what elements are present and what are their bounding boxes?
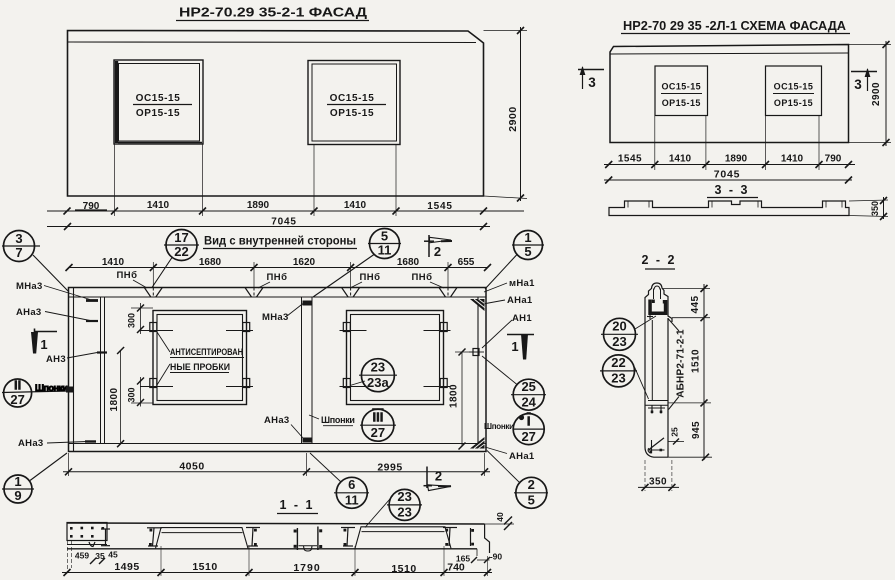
svg-text:МНа3: МНа3	[16, 281, 43, 292]
svg-text:300: 300	[127, 313, 137, 328]
svg-text:459: 459	[75, 551, 89, 561]
svg-text:1410: 1410	[344, 200, 367, 211]
svg-text:II: II	[14, 378, 21, 393]
svg-text:3: 3	[854, 77, 862, 92]
svg-text:23а: 23а	[367, 375, 389, 390]
svg-text:ОС15-15: ОС15-15	[330, 93, 375, 104]
svg-text:2: 2	[434, 244, 441, 259]
svg-text:7: 7	[15, 245, 22, 260]
svg-text:25: 25	[670, 427, 680, 437]
svg-text:1410: 1410	[147, 200, 170, 211]
svg-text:2900: 2900	[871, 82, 882, 106]
svg-text:23: 23	[397, 505, 411, 520]
svg-text:2995: 2995	[377, 461, 402, 473]
svg-text:790: 790	[825, 154, 842, 165]
svg-text:АБНР2-71-2-1: АБНР2-71-2-1	[676, 329, 687, 398]
svg-text:III: III	[372, 410, 383, 425]
svg-text:1890: 1890	[247, 200, 270, 211]
svg-text:1800: 1800	[109, 388, 120, 412]
svg-text:27: 27	[521, 429, 535, 444]
svg-text:1545: 1545	[618, 154, 642, 165]
svg-text:11: 11	[345, 493, 359, 508]
svg-text:1800: 1800	[449, 384, 460, 408]
svg-text:1495: 1495	[114, 561, 139, 573]
svg-text:23: 23	[397, 489, 411, 504]
svg-text:445: 445	[690, 296, 701, 314]
svg-text:-90: -90	[490, 552, 503, 562]
svg-text:3 - 3: 3 - 3	[714, 183, 749, 197]
svg-text:1620: 1620	[293, 257, 316, 268]
svg-text:АНа3: АНа3	[264, 415, 290, 426]
svg-text:АНТИСЕПТИРОВАН: АНТИСЕПТИРОВАН	[170, 347, 243, 358]
svg-text:1 - 1: 1 - 1	[279, 498, 314, 512]
svg-text:Шпонки: Шпонки	[484, 422, 514, 431]
svg-text:ОС15-15: ОС15-15	[774, 82, 814, 92]
svg-text:1: 1	[40, 337, 47, 352]
svg-text:9: 9	[14, 488, 21, 503]
svg-text:40: 40	[495, 512, 505, 522]
svg-text:22: 22	[174, 244, 188, 259]
svg-text:ПНб: ПНб	[359, 272, 380, 283]
svg-text:17: 17	[174, 230, 188, 245]
svg-text:5: 5	[524, 244, 531, 259]
svg-text:ОР15-15: ОР15-15	[774, 98, 813, 108]
svg-text:2 - 2: 2 - 2	[641, 253, 676, 267]
svg-text:АНа1: АНа1	[509, 451, 535, 462]
svg-text:4050: 4050	[179, 460, 204, 472]
svg-text:45: 45	[108, 550, 118, 560]
svg-text:23: 23	[611, 371, 625, 386]
svg-text:300: 300	[127, 387, 137, 402]
svg-text:1510: 1510	[192, 561, 217, 573]
svg-text:165: 165	[456, 554, 470, 564]
svg-text:11: 11	[378, 243, 392, 258]
svg-text:350: 350	[649, 476, 667, 487]
svg-text:ОР15-15: ОР15-15	[136, 108, 180, 119]
svg-text:ПНб: ПНб	[411, 272, 432, 283]
svg-text:АН3: АН3	[46, 354, 66, 365]
svg-text:2900: 2900	[507, 106, 519, 131]
svg-text:МНа3: МНа3	[262, 312, 289, 323]
svg-text:7045: 7045	[714, 169, 741, 181]
svg-text:1: 1	[511, 339, 518, 354]
svg-text:АНа3: АНа3	[16, 307, 42, 318]
svg-text:I: I	[527, 414, 531, 429]
svg-text:1: 1	[524, 230, 531, 245]
svg-text:1545: 1545	[427, 201, 452, 212]
svg-text:1510: 1510	[691, 349, 702, 373]
svg-text:ОС15-15: ОС15-15	[661, 82, 701, 92]
svg-text:НЫЕ ПРОБКИ: НЫЕ ПРОБКИ	[170, 362, 230, 373]
svg-text:2: 2	[528, 477, 535, 492]
svg-text:3: 3	[15, 231, 22, 246]
svg-text:945: 945	[691, 421, 702, 439]
svg-text:Вид с внутренней стороны: Вид с внутренней стороны	[204, 234, 356, 248]
svg-text:3: 3	[588, 75, 596, 90]
svg-text:1680: 1680	[397, 257, 420, 268]
svg-text:350: 350	[870, 201, 880, 216]
svg-text:АНа1: АНа1	[507, 295, 533, 306]
svg-text:5: 5	[381, 229, 388, 244]
svg-text:ОР15-15: ОР15-15	[662, 98, 701, 108]
svg-text:1680: 1680	[199, 257, 222, 268]
svg-text:Шпонки: Шпонки	[321, 415, 355, 425]
svg-text:1: 1	[14, 474, 21, 489]
svg-text:1410: 1410	[102, 257, 125, 268]
svg-text:Шпонки: Шпонки	[35, 383, 67, 393]
svg-text:27: 27	[10, 392, 24, 407]
svg-text:ПНб: ПНб	[116, 270, 137, 281]
svg-text:1410: 1410	[669, 154, 692, 165]
svg-text:мНа1: мНа1	[509, 278, 535, 289]
svg-text:7045: 7045	[271, 217, 296, 228]
svg-text:1890: 1890	[725, 154, 748, 165]
svg-text:655: 655	[458, 257, 475, 268]
svg-text:6: 6	[348, 477, 355, 492]
svg-text:22: 22	[611, 355, 625, 370]
svg-text:27: 27	[371, 425, 385, 440]
svg-text:НР2-70.29 35-2-1 ФАСАД: НР2-70.29 35-2-1 ФАСАД	[179, 5, 368, 20]
svg-text:АНа3: АНа3	[18, 438, 44, 449]
svg-text:23: 23	[612, 334, 626, 349]
svg-text:АН1: АН1	[512, 313, 532, 324]
svg-text:1790: 1790	[293, 562, 320, 574]
svg-text:5: 5	[528, 493, 535, 508]
svg-text:НР2-70 29 35 -2Л-1 СХЕМА ФАСАД: НР2-70 29 35 -2Л-1 СХЕМА ФАСАДА	[623, 19, 846, 33]
svg-text:20: 20	[612, 319, 626, 334]
svg-text:1410: 1410	[781, 154, 804, 165]
svg-text:1510: 1510	[391, 563, 416, 575]
svg-text:ПНб: ПНб	[266, 272, 287, 283]
svg-text:2: 2	[435, 469, 442, 484]
svg-text:ОР15-15: ОР15-15	[330, 108, 374, 119]
svg-text:ОС15-15: ОС15-15	[136, 93, 181, 104]
svg-text:25: 25	[521, 379, 535, 394]
svg-text:24: 24	[521, 395, 536, 410]
svg-text:23: 23	[371, 360, 385, 375]
